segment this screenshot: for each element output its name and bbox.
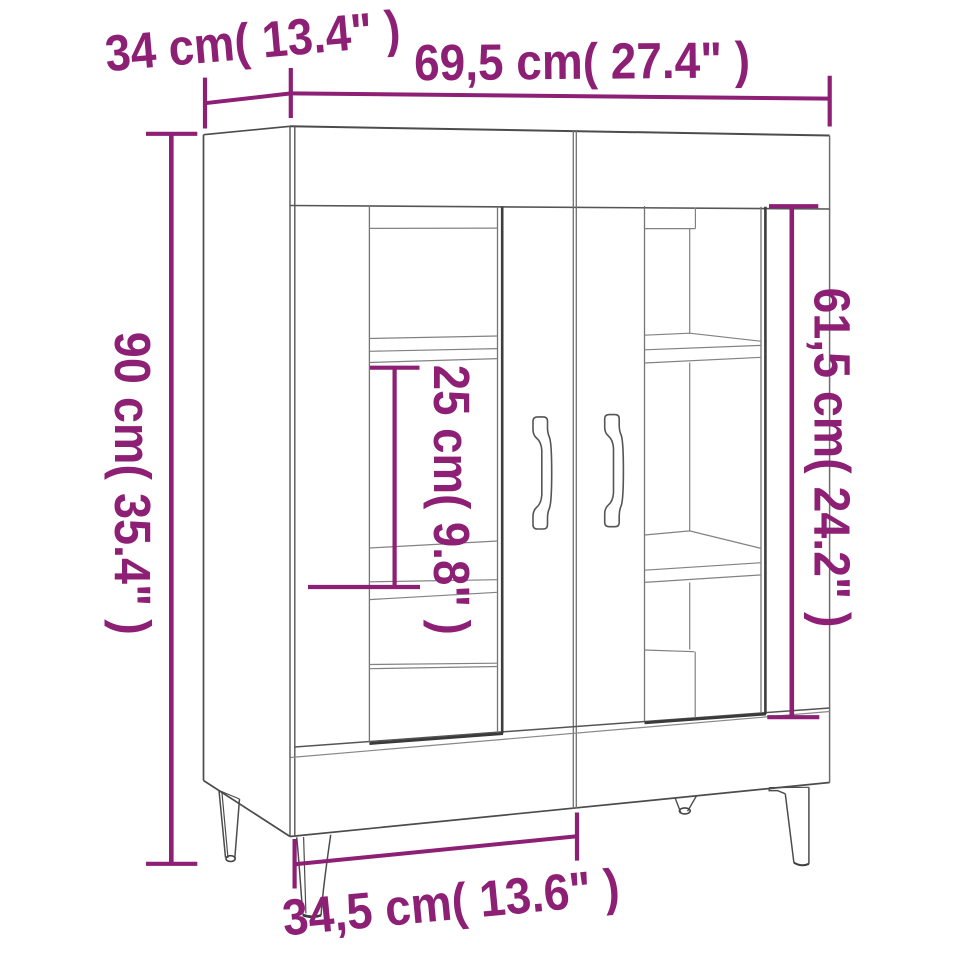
svg-text:34,5 cm( 13.6" ): 34,5 cm( 13.6" ): [280, 858, 622, 947]
svg-text:69,5 cm( 27.4" ): 69,5 cm( 27.4" ): [414, 31, 750, 91]
svg-text:34 cm( 13.4" ): 34 cm( 13.4" ): [103, 0, 403, 82]
svg-text:25 cm( 9.8" ): 25 cm( 9.8" ): [423, 365, 480, 635]
svg-text:61,5 cm( 24.2" ): 61,5 cm( 24.2" ): [804, 288, 861, 628]
svg-text:90 cm( 35.4" ): 90 cm( 35.4" ): [104, 332, 161, 635]
